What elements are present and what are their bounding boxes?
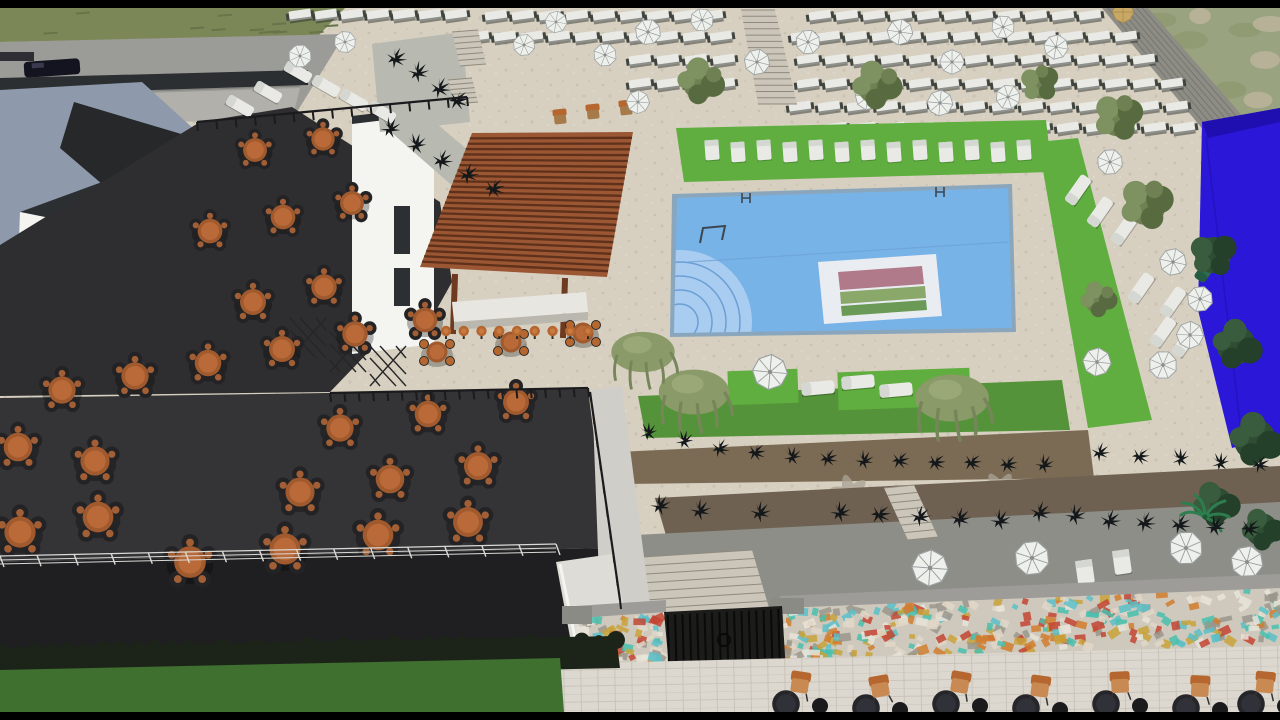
- railing-post: [416, 391, 417, 400]
- lawn-lounger: [808, 140, 823, 162]
- high-top-set: [420, 340, 455, 368]
- mosaic-tile: [1023, 611, 1032, 621]
- pergola-slat: [470, 138, 632, 139]
- railing-post: [197, 122, 198, 131]
- chair-seat: [587, 109, 600, 119]
- railing-post: [293, 113, 294, 122]
- railing-post: [488, 390, 489, 399]
- rendering-canvas: [0, 0, 1280, 720]
- railing-post: [313, 111, 314, 120]
- hedge-bump: [421, 637, 435, 651]
- mosaic-tile: [843, 621, 854, 628]
- lawn-lounger: [912, 140, 927, 162]
- hedge-bump: [319, 640, 331, 652]
- pergola-slat: [464, 154, 629, 155]
- building-window: [394, 268, 410, 306]
- mosaic-tile: [968, 643, 979, 650]
- mosaic-tile: [1241, 634, 1249, 640]
- lawn-lounger: [756, 140, 771, 162]
- railing-post: [574, 388, 575, 397]
- mosaic-tile: [1099, 616, 1106, 623]
- grass-streak: [76, 12, 90, 13]
- lawn-lounger: [730, 142, 745, 164]
- hedge-bump: [200, 642, 212, 654]
- lawn-lounger: [782, 142, 797, 164]
- railing-post: [467, 97, 468, 106]
- railing-post: [603, 484, 604, 493]
- hedge-bump: [268, 641, 279, 652]
- garden-chaise: [879, 382, 913, 399]
- railing-post: [588, 388, 589, 397]
- terrace-cabana: [1112, 549, 1132, 576]
- hedge-bump: [163, 641, 179, 657]
- railing-post: [559, 389, 560, 398]
- hedge-bump: [299, 637, 317, 655]
- grass-streak: [273, 32, 287, 33]
- railing-post: [409, 102, 410, 111]
- bar-stools: [441, 326, 593, 339]
- mosaic-tile: [633, 618, 645, 625]
- grass-streak: [259, 32, 273, 33]
- hedge-bump: [44, 643, 59, 658]
- railing-post: [351, 108, 352, 117]
- railing-post: [387, 392, 388, 401]
- hedge-bump: [234, 642, 245, 653]
- street-object: [0, 52, 34, 61]
- railing-post: [610, 531, 611, 540]
- grass-streak: [43, 33, 57, 34]
- railing-post: [597, 438, 598, 447]
- railing-post: [255, 117, 256, 126]
- railing-post: [430, 391, 431, 400]
- railing-post: [593, 415, 594, 424]
- pergola-slat: [460, 165, 627, 167]
- hedge-bump: [12, 646, 23, 657]
- hedge-bump: [474, 637, 484, 647]
- lawn-lounger: [938, 142, 953, 164]
- railing-post: [590, 392, 591, 401]
- white-umbrella: [940, 50, 965, 75]
- railing-post: [516, 389, 517, 398]
- lawn-lounger: [964, 140, 979, 162]
- railing-post: [373, 392, 374, 401]
- railing-post: [402, 392, 403, 401]
- lawn-lounger: [1016, 140, 1031, 162]
- railing-post: [448, 99, 449, 108]
- mosaic-tile: [786, 640, 792, 647]
- wooden-deck-chair: [552, 108, 567, 124]
- hedge-bump: [129, 641, 146, 658]
- mosaic-tile: [986, 623, 993, 631]
- mosaic-tile: [929, 604, 938, 608]
- lawn-lounger: [860, 140, 875, 162]
- mosaic-tile: [822, 624, 829, 632]
- grass-streak: [309, 32, 323, 33]
- hedge-bump: [145, 640, 163, 658]
- garden-chaise: [801, 380, 835, 397]
- railing-post: [359, 392, 360, 401]
- railing-post: [600, 461, 601, 470]
- railing-post: [216, 120, 217, 129]
- railing-post: [607, 508, 608, 517]
- grass-streak: [250, 29, 264, 30]
- mosaic-tile: [1171, 621, 1181, 631]
- wall-pier: [562, 606, 592, 624]
- railing-post: [531, 389, 532, 398]
- hedge-bump: [523, 634, 538, 649]
- hedge-bump: [455, 636, 469, 650]
- mosaic-tile: [927, 621, 938, 629]
- hedge-bump: [607, 631, 625, 649]
- railing-post: [330, 393, 331, 402]
- chair-seat: [554, 114, 567, 124]
- mosaic-tile: [1258, 635, 1264, 642]
- letterbox-top: [0, 0, 1280, 8]
- hedge-bump: [94, 641, 112, 659]
- lawn-lounger: [704, 140, 719, 162]
- hedge-bump: [507, 636, 519, 648]
- mosaic-tile: [909, 634, 915, 639]
- hedge-bump: [78, 643, 92, 657]
- mosaic-tile: [983, 635, 996, 642]
- hedge-bump: [26, 643, 42, 659]
- railing-post: [545, 389, 546, 398]
- hedge-bump: [405, 638, 417, 650]
- mosaic-tile: [918, 609, 930, 616]
- mosaic-tile: [1031, 625, 1041, 632]
- railing-post: [428, 101, 429, 110]
- hedge-bump: [370, 638, 383, 651]
- hedge-bump: [248, 639, 265, 656]
- hedge-bump: [181, 641, 196, 656]
- mosaic-tile: [834, 633, 840, 641]
- grass-streak: [190, 27, 204, 28]
- mosaic-tile: [1101, 632, 1107, 638]
- dark-chair: [1132, 698, 1148, 714]
- hedge-bump: [286, 641, 297, 652]
- hedge-bump: [574, 633, 590, 649]
- grass-streak: [218, 15, 232, 16]
- railing-post: [371, 106, 372, 115]
- hedge-bump: [214, 639, 231, 656]
- mosaic-tile: [1248, 626, 1259, 631]
- mosaic-tile: [1190, 621, 1196, 627]
- mosaic-tile: [838, 633, 851, 642]
- hedge-bump: [111, 641, 128, 658]
- mosaic-tile: [884, 642, 895, 647]
- railing-post: [473, 390, 474, 399]
- lawn-lounger: [990, 142, 1005, 164]
- mosaic-tile: [807, 649, 820, 655]
- venue-rendering-image: [0, 0, 1280, 720]
- railing-post: [613, 554, 614, 563]
- hedge-bump: [438, 636, 453, 651]
- lawn-lounger: [834, 142, 849, 164]
- letterbox-bottom: [0, 712, 1280, 720]
- mosaic-tile: [851, 650, 857, 658]
- hedge-bump: [385, 636, 402, 653]
- mosaic-tile: [621, 617, 628, 626]
- scrub-patch: [1250, 51, 1280, 69]
- hedge-bump: [594, 635, 604, 645]
- hedge-bump: [491, 637, 501, 647]
- grass-streak: [272, 23, 286, 24]
- railing-post: [620, 600, 621, 609]
- mosaic-tile: [884, 625, 891, 630]
- terrace-cabana: [1075, 559, 1095, 586]
- railing-post: [617, 577, 618, 586]
- railing-post: [445, 391, 446, 400]
- hedge-bump: [60, 643, 76, 659]
- garden-chaise: [841, 374, 875, 391]
- railing-post: [274, 115, 275, 124]
- hedge-bump: [354, 640, 365, 651]
- lawn-lounger: [886, 142, 901, 164]
- scrub-patch: [1189, 8, 1211, 24]
- railing-post: [236, 118, 237, 127]
- dark-chair: [812, 698, 828, 714]
- scrub-patch: [1244, 92, 1273, 109]
- wooden-deck-chair: [585, 103, 600, 119]
- railing-post: [459, 391, 460, 400]
- mosaic-tile: [1182, 620, 1191, 625]
- hedge-bump: [334, 637, 350, 653]
- pool-bottom-mural: [818, 254, 942, 324]
- grass-streak: [324, 25, 338, 26]
- mosaic-tile: [995, 606, 1003, 612]
- hedge-bump: [542, 636, 552, 646]
- dark-chair: [972, 698, 988, 714]
- building-window: [394, 206, 410, 254]
- railing-post: [502, 390, 503, 399]
- pergola-slat: [462, 160, 628, 161]
- hedge-bump: [558, 635, 571, 648]
- railing-post: [332, 110, 333, 119]
- railing-post: [390, 104, 391, 113]
- railing-post: [344, 393, 345, 402]
- grass-streak: [212, 29, 226, 30]
